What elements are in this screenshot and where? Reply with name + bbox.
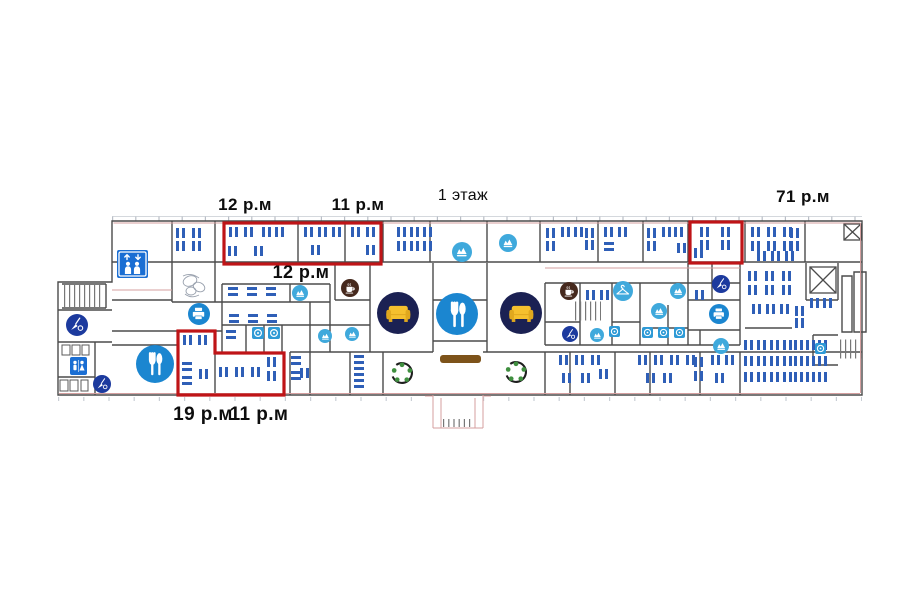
workplace-count-label: 11 р.м [230,405,289,424]
workplace-count-label: 12 р.м [273,263,330,281]
floor-title: 1 этаж [438,188,488,204]
workplace-count-label: 71 р.м [776,188,830,205]
workplace-count-label: 19 р.м [173,405,233,424]
workplace-count-label: 11 р.м [332,196,385,213]
workplace-count-label: 12 р.м [218,196,272,213]
labels-layer: 1 этаж 12 р.м11 р.м71 р.м12 р.м19 р.м11 … [0,0,900,604]
floor-plan-image: 1 этаж 12 р.м11 р.м71 р.м12 р.м19 р.м11 … [0,0,900,604]
